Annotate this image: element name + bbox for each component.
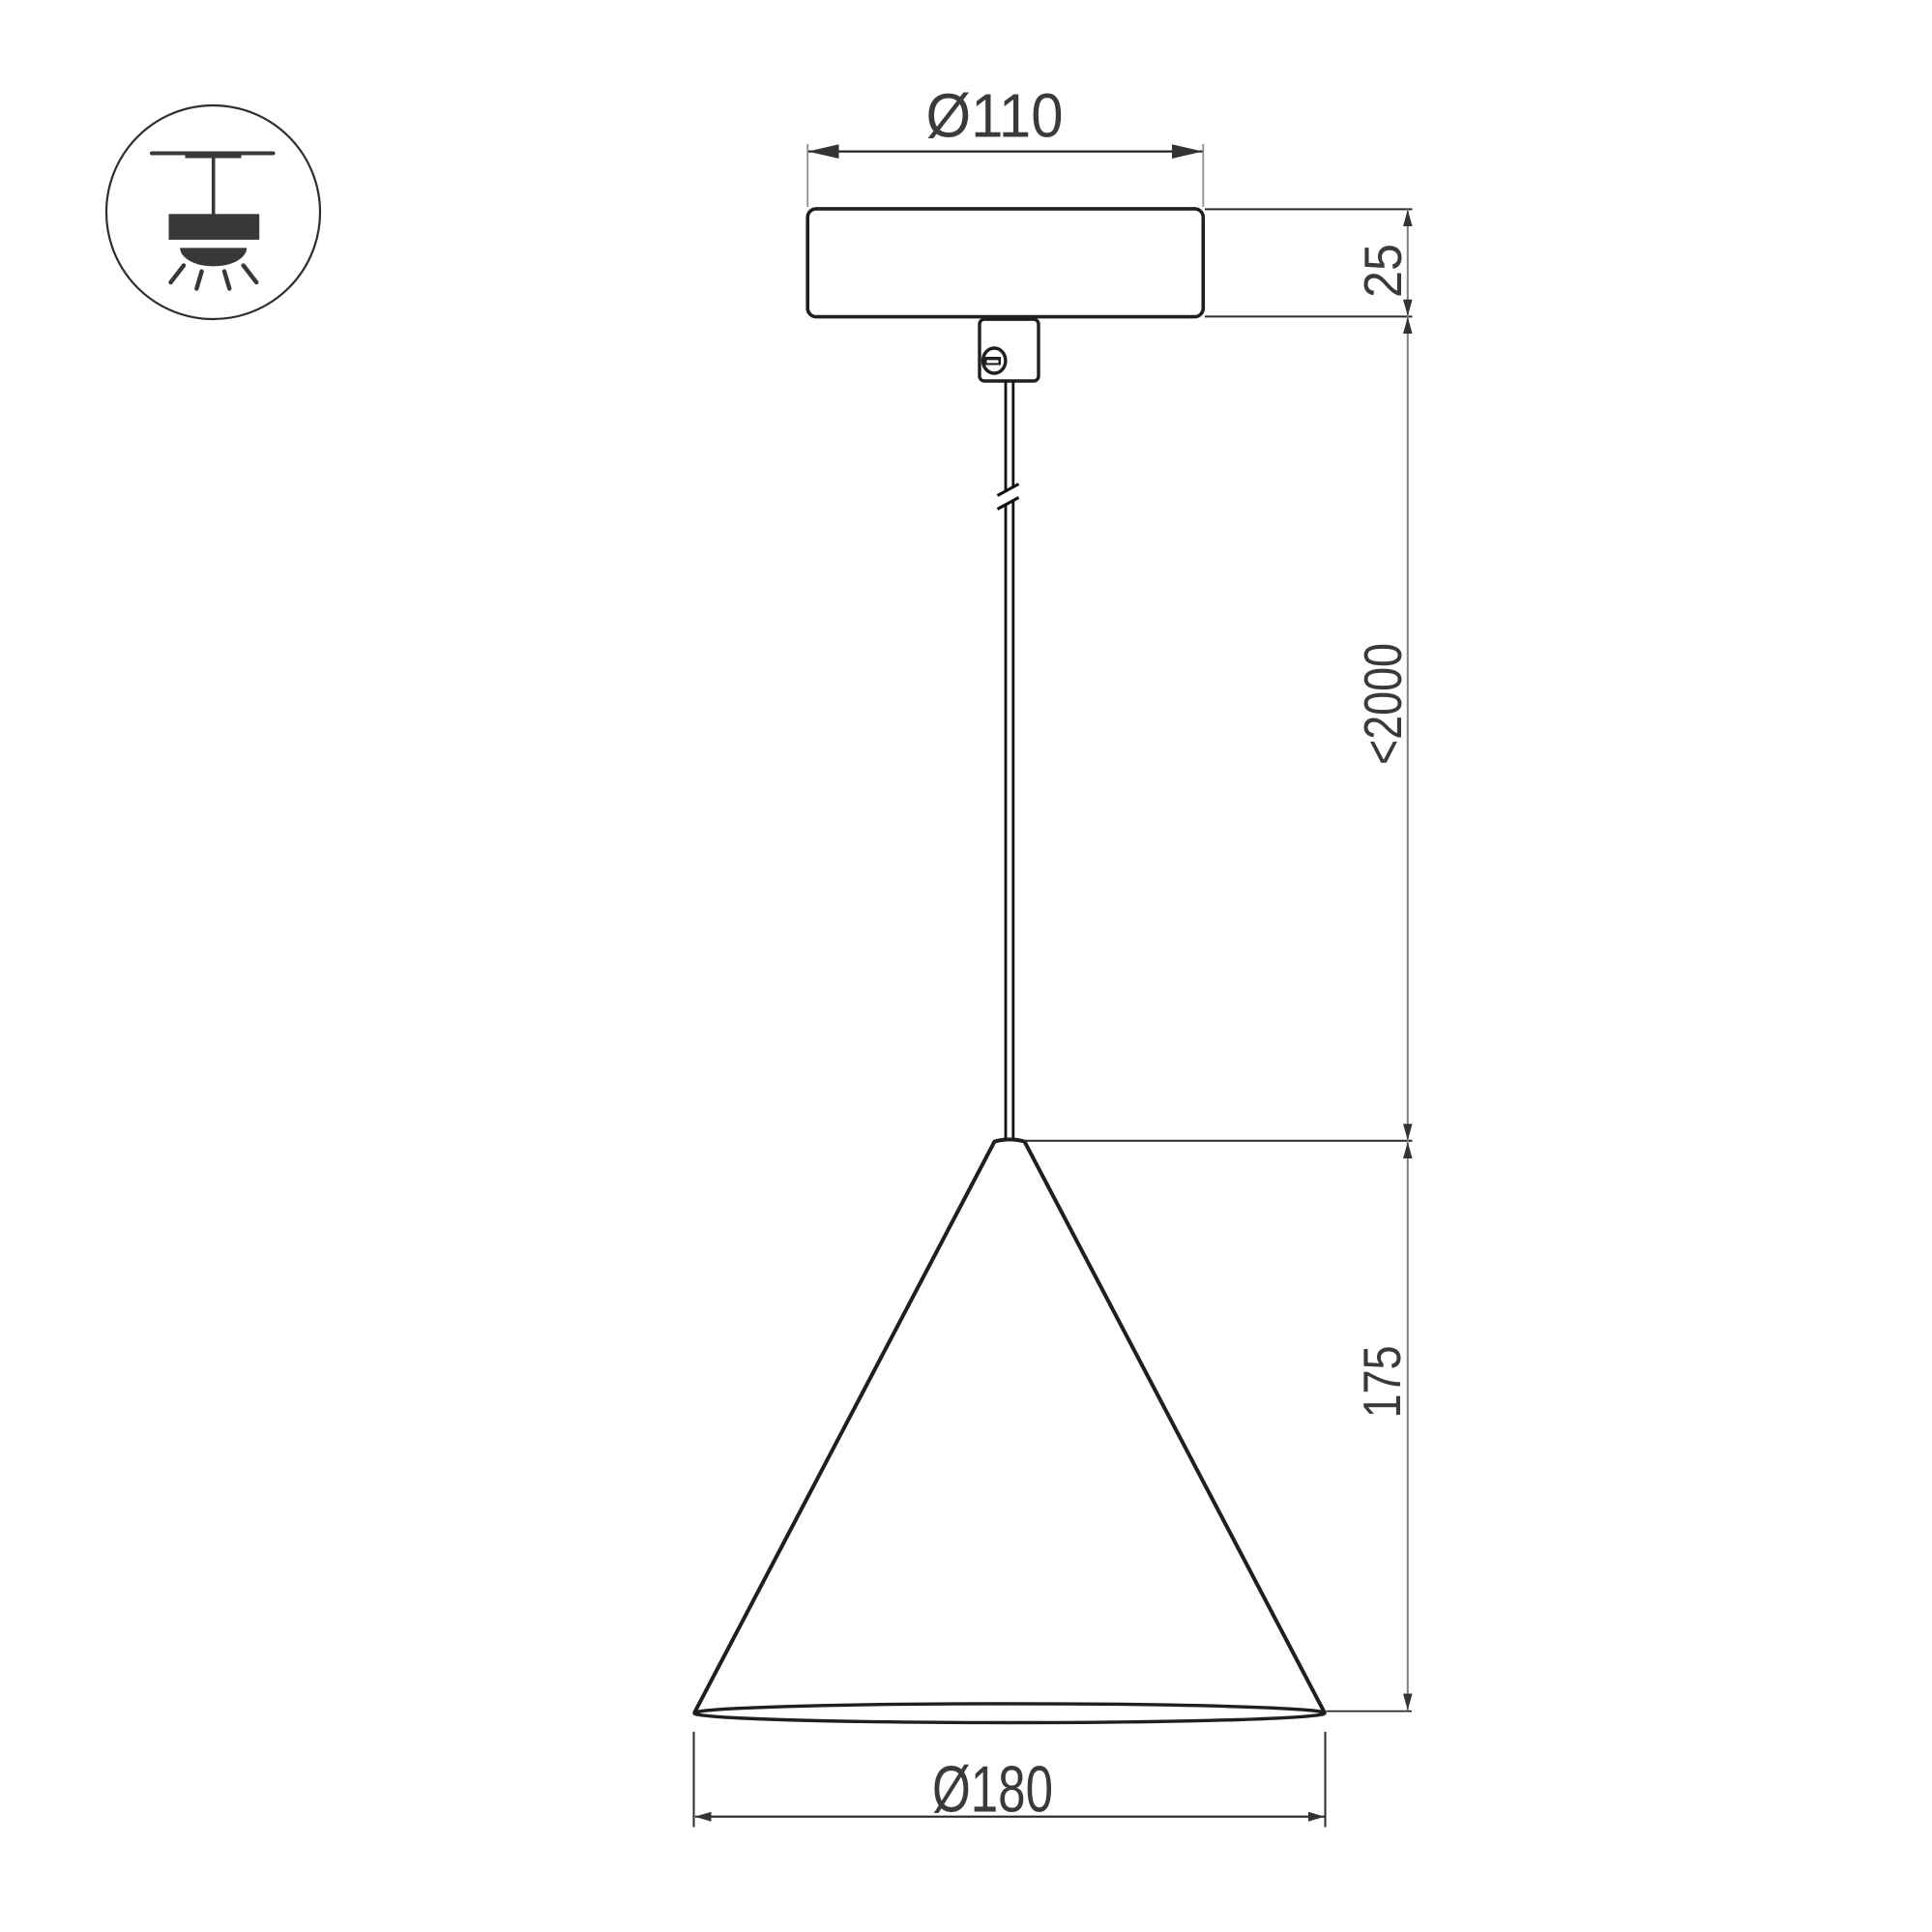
svg-text:<2000: <2000: [1353, 643, 1413, 765]
svg-text:Ø110: Ø110: [926, 81, 1064, 151]
svg-text:25: 25: [1353, 244, 1413, 298]
svg-text:175: 175: [1352, 1346, 1412, 1419]
svg-text:Ø180: Ø180: [932, 1753, 1053, 1827]
